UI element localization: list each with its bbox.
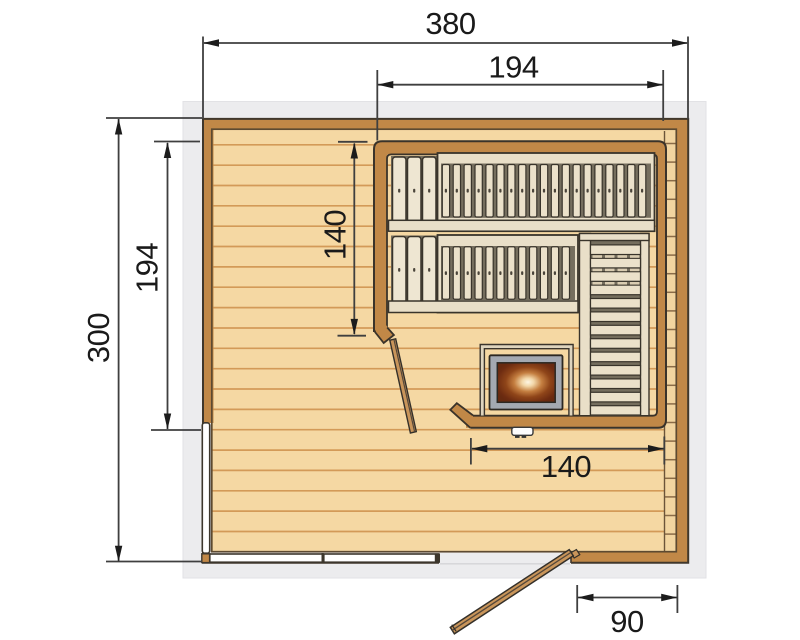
svg-text:140: 140 xyxy=(541,449,591,484)
svg-text:194: 194 xyxy=(488,50,538,85)
svg-text:194: 194 xyxy=(130,243,165,293)
svg-text:300: 300 xyxy=(81,313,116,363)
svg-text:90: 90 xyxy=(610,604,644,639)
svg-text:380: 380 xyxy=(425,6,475,41)
svg-text:140: 140 xyxy=(317,210,352,260)
